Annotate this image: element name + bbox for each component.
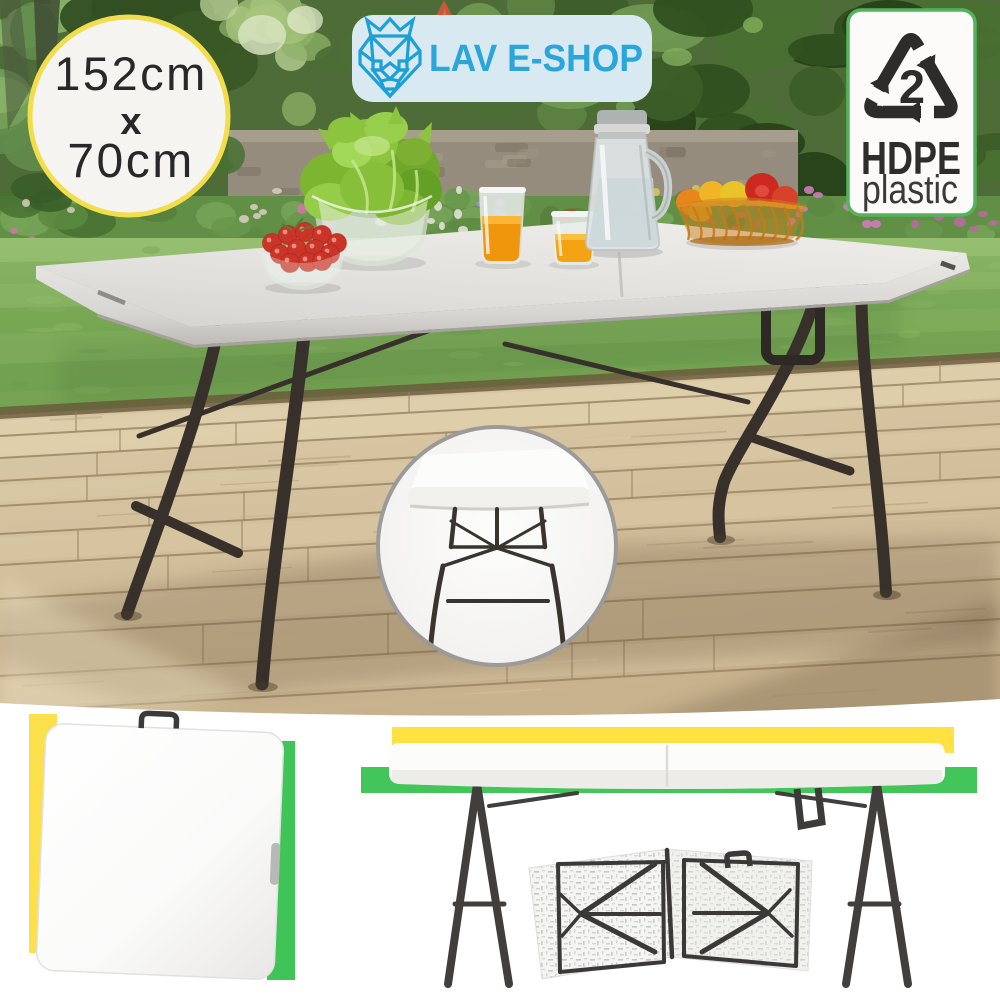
svg-text:2: 2 (899, 60, 925, 113)
svg-text:70cm: 70cm (67, 135, 194, 188)
svg-text:LAV E-SHOP: LAV E-SHOP (429, 38, 643, 80)
svg-text:plastic: plastic (862, 168, 958, 212)
svg-text:152cm: 152cm (54, 47, 208, 100)
